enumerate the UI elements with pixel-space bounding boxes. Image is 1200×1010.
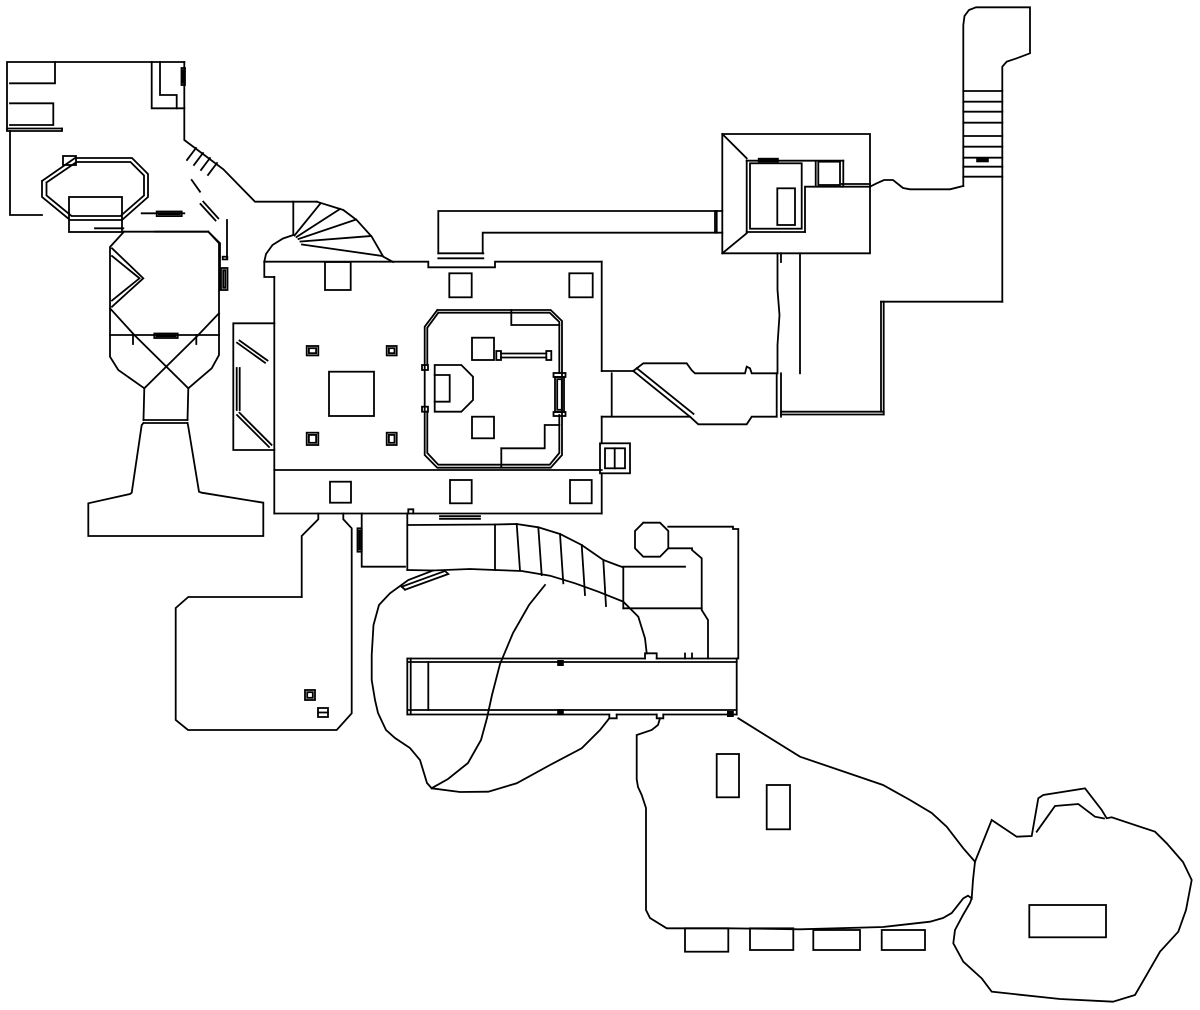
corridor-square-e [728,712,734,717]
nw-stair-tread-2 [194,153,203,165]
cave-west-edge [372,571,433,789]
chalice-outline [88,423,263,536]
nw-closet-inner [160,62,177,108]
e-corridor-diag-door-b [637,368,694,414]
se-stair-tread-4 [560,534,563,583]
pillar-small-nw-inner [309,348,316,353]
nw-stair-lower-rail [192,180,200,192]
antechamber-door-ne-b [240,341,268,361]
se-stair-tread-3 [538,527,541,575]
hub-neck-top [668,527,738,659]
sq-room-diag-nw [722,134,746,158]
nw-stair-tread-1 [187,148,196,160]
shaft-switch [977,159,989,162]
corner-square-ne [569,273,592,297]
sqroom-crate [777,188,795,225]
zigzag-wall-right [188,232,219,389]
octagon-inner [47,162,145,216]
zigzag-x-b [144,335,198,388]
n-corridor-bottom [483,233,723,254]
fan-tread-5 [302,245,383,257]
ne-lift-step [223,257,228,260]
nw-south-door-inner [159,213,180,214]
zigzag-wall-left [110,232,144,389]
nw-room-east-wall-stair-rail [184,62,316,202]
corridor-top-notch [645,653,657,658]
shaft-outline [963,7,1030,301]
blob-outline [953,788,1191,1001]
sq-room-inner-east [805,161,843,232]
bar-ledge-c [402,587,405,590]
hub-octagon [635,523,668,557]
fan-tread-4 [301,236,372,242]
blob-crate [1029,905,1106,937]
c-platform-notch [435,375,450,402]
antechamber-door-ne-a [237,343,265,363]
se-stair-lower-straight [407,570,433,571]
cave-crate-1 [717,754,739,797]
room-left-step [264,262,274,277]
antechamber-door-se-a [237,415,269,447]
zigzag-floor-diag-r [198,313,219,335]
bar-end-e [546,351,551,360]
nw-alcove-mid [10,103,53,125]
cave-east-bottom-edge [637,718,975,929]
corner-square-se [570,480,592,503]
e-corridor-diag-door-a [633,371,690,417]
nw-room-top-left-wall [7,62,184,130]
octagon-pit [69,197,122,232]
ll-room-outline [176,514,352,731]
center-square [329,372,374,416]
ne-lift-door [221,268,228,290]
cave-south-edge [432,718,610,792]
blob-claw-inner [1037,804,1104,832]
room-top-edge [264,262,601,268]
bar-end-w [496,351,501,360]
corridor-notch-a [609,715,616,719]
e-corridor-bottom [602,417,777,425]
fan-inner-arc [264,235,293,262]
cave-s-box-2 [750,928,793,950]
corridor-square-n [558,661,564,666]
ll-box-a-inner [307,692,313,698]
pillar-small-sw-inner [309,435,316,443]
cave-s-box-3 [813,930,860,950]
e-corridor-top-b [633,363,776,373]
ll-room-door-left [302,514,319,598]
corridor-square-s [558,710,564,715]
ll-door-mark-inner [359,531,360,550]
pillar-small-se-inner [389,435,395,443]
zigzag-x-a [134,335,188,388]
nw-stair-tread-3 [201,158,210,170]
octagon-outer [42,158,148,220]
south-square [330,482,351,503]
antechamber-door-se-b [240,413,272,445]
nw-alcove-top [10,62,55,83]
inner-room-inner-a [438,313,559,373]
nw-closet-door-inner [183,70,184,83]
corner-square-nw [449,273,471,297]
hub-neck-bottom [668,548,708,658]
se-stair-tread-2 [517,524,520,571]
sqroom-door-thick [758,158,778,162]
inner-square-n [472,338,494,360]
nw-stair-tread-4 [208,163,217,175]
sqroom-box-b [818,162,840,185]
cliff-edge [870,180,963,189]
cave-s-box-1 [685,928,728,951]
se-ledge-upper-curve [407,524,623,567]
stem-right [188,388,189,420]
top-attached-square [325,262,351,290]
zigzag-floor-diag-l [110,308,134,335]
corner-square-sw [450,480,472,503]
level-automap [0,0,1200,1010]
inner-room-steps-a [501,425,559,448]
pillar-small-ne-inner [389,348,395,353]
cave-s-box-4 [882,930,925,950]
nw-closet-outer [152,62,185,108]
inner-room-inner-b [501,415,559,465]
inner-square-s [472,417,494,439]
c-platform [435,365,473,412]
ne-lift-door-inner [223,270,225,288]
sq-room-diag-sw [722,233,746,253]
cave-north-edge [433,569,647,653]
inner-east-door-inner [557,379,562,410]
se-stair-tread-5 [582,545,585,595]
ledge-east-ll [362,514,405,567]
zigzag-door-inner [157,335,176,336]
cave-inner-curve [432,585,545,788]
se-stair-tread-6 [603,560,606,606]
sqroom-cell-a [750,163,802,228]
ne-ledge [155,232,220,290]
ns-connector-w [778,253,780,373]
inner-room-outer [425,310,562,468]
cave-crate-2 [767,785,790,829]
nw-left-wall-lower [10,131,42,215]
cave-east-north-edge [738,718,975,861]
stem-left [144,388,145,420]
level-map-svg [0,0,1200,1010]
